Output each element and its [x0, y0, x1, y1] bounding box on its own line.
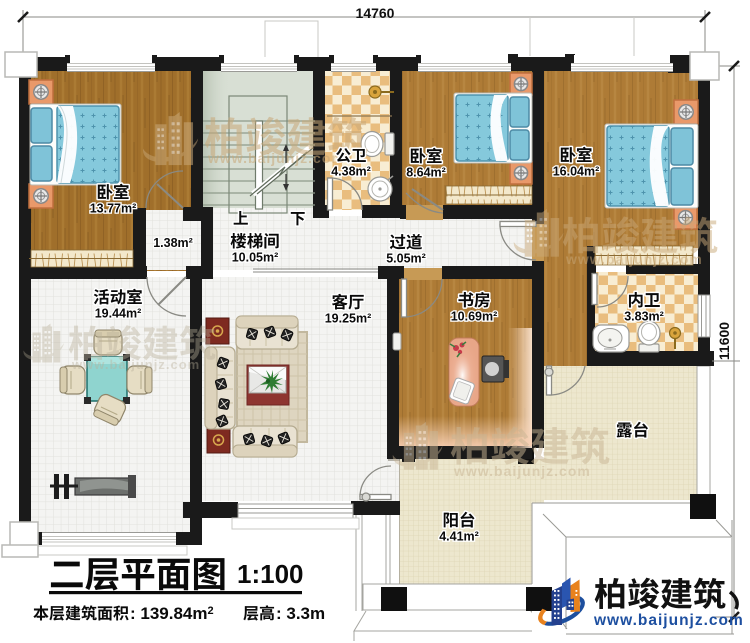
- svg-text:13.77m²: 13.77m²: [90, 202, 137, 216]
- svg-text:5.05m²: 5.05m²: [386, 252, 426, 266]
- svg-text:www.baijunjz.com: www.baijunjz.com: [207, 150, 345, 166]
- svg-text:4.41m²: 4.41m²: [439, 530, 479, 544]
- svg-text:16.04m²: 16.04m²: [553, 165, 600, 179]
- svg-text:14760: 14760: [356, 5, 395, 21]
- svg-text:10.69m²: 10.69m²: [451, 310, 498, 324]
- svg-text:: 3.3m: : 3.3m: [276, 604, 325, 623]
- svg-text:11600: 11600: [716, 322, 732, 360]
- svg-text:10.05m²: 10.05m²: [232, 251, 279, 265]
- svg-text:www.baijunjz.com: www.baijunjz.com: [453, 463, 591, 479]
- svg-text:: 139.84m2: : 139.84m2: [130, 604, 214, 623]
- svg-text:www.baijunjz.com: www.baijunjz.com: [565, 251, 703, 267]
- svg-text:4.38m²: 4.38m²: [331, 165, 371, 179]
- svg-text:1:100: 1:100: [237, 559, 304, 589]
- svg-text:19.25m²: 19.25m²: [325, 312, 372, 326]
- svg-text:19.44m²: 19.44m²: [95, 307, 142, 321]
- svg-text:8.64m²: 8.64m²: [406, 166, 446, 180]
- svg-text:1.38m²: 1.38m²: [153, 236, 193, 250]
- svg-text:3.83m²: 3.83m²: [624, 310, 664, 324]
- svg-text:www.baijunjz.com: www.baijunjz.com: [593, 612, 744, 629]
- svg-text:www.baijunjz.com: www.baijunjz.com: [71, 357, 200, 372]
